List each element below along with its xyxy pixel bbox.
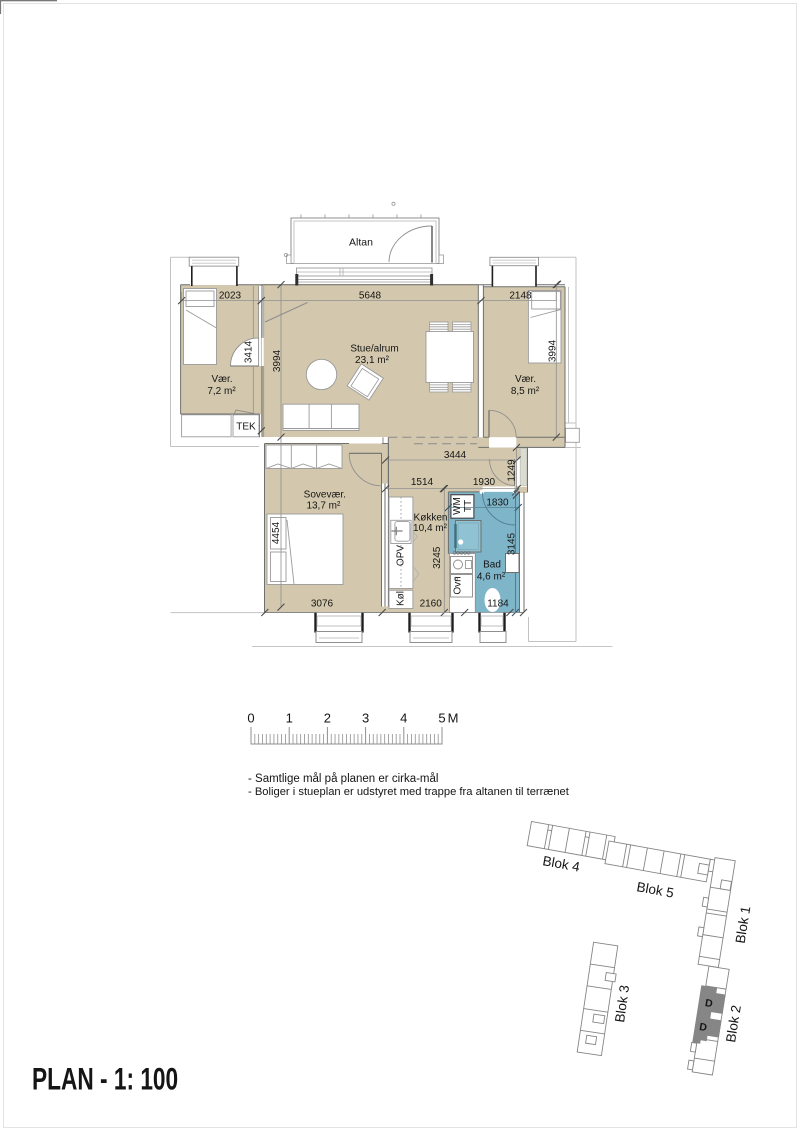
svg-text:7,2 m²: 7,2 m² bbox=[207, 386, 236, 397]
svg-text:M: M bbox=[448, 711, 459, 726]
svg-text:Køl: Køl bbox=[396, 591, 407, 606]
svg-text:1514: 1514 bbox=[411, 477, 434, 488]
svg-text:10,4 m²: 10,4 m² bbox=[413, 523, 448, 534]
svg-text:0: 0 bbox=[247, 711, 254, 726]
svg-text:1: 1 bbox=[286, 711, 293, 726]
svg-text:3: 3 bbox=[362, 711, 369, 726]
svg-text:2023: 2023 bbox=[219, 291, 242, 302]
svg-text:- Boliger i stueplan er udstyr: - Boliger i stueplan er udstyret med tra… bbox=[248, 786, 570, 798]
svg-text:1184: 1184 bbox=[487, 599, 509, 610]
svg-text:3076: 3076 bbox=[311, 599, 334, 610]
svg-text:Vær.: Vær. bbox=[515, 374, 536, 385]
svg-text:2148: 2148 bbox=[509, 291, 532, 302]
svg-text:5: 5 bbox=[438, 711, 445, 726]
svg-text:Bad: Bad bbox=[483, 560, 501, 571]
svg-text:- Samtlige mål på planen er ci: - Samtlige mål på planen er cirka-mål bbox=[248, 773, 438, 785]
svg-text:2: 2 bbox=[324, 711, 331, 726]
svg-text:Køkken: Køkken bbox=[414, 513, 448, 524]
svg-text:2160: 2160 bbox=[420, 599, 443, 610]
svg-text:1249: 1249 bbox=[507, 459, 518, 482]
svg-text:1830: 1830 bbox=[486, 498, 509, 509]
svg-text:5648: 5648 bbox=[359, 291, 382, 302]
svg-text:TEK: TEK bbox=[236, 422, 256, 433]
svg-text:13,7 m²: 13,7 m² bbox=[306, 500, 341, 511]
svg-text:3994: 3994 bbox=[547, 339, 558, 362]
svg-text:8,5 m²: 8,5 m² bbox=[511, 386, 540, 397]
svg-text:Ovn: Ovn bbox=[452, 576, 463, 594]
svg-text:3414: 3414 bbox=[243, 340, 254, 363]
svg-text:Vær.: Vær. bbox=[211, 374, 232, 385]
svg-text:Altan: Altan bbox=[349, 237, 373, 249]
svg-text:OPV: OPV bbox=[395, 545, 406, 566]
svg-text:4,6 m²: 4,6 m² bbox=[477, 572, 506, 583]
svg-text:3994: 3994 bbox=[272, 349, 283, 372]
svg-text:23,1 m²: 23,1 m² bbox=[355, 355, 390, 366]
svg-text:4: 4 bbox=[400, 711, 407, 726]
svg-text:WM: WM bbox=[452, 497, 463, 515]
svg-text:4454: 4454 bbox=[271, 521, 282, 544]
svg-text:TT: TT bbox=[463, 500, 474, 512]
svg-text:3145: 3145 bbox=[507, 532, 518, 555]
svg-text:3245: 3245 bbox=[432, 546, 443, 569]
svg-text:PLAN - 1: 100: PLAN - 1: 100 bbox=[32, 1061, 178, 1097]
svg-text:3444: 3444 bbox=[444, 450, 467, 461]
svg-text:Sovevær.: Sovevær. bbox=[304, 489, 346, 500]
svg-text:1930: 1930 bbox=[473, 477, 496, 488]
svg-text:Stue/alrum: Stue/alrum bbox=[350, 343, 398, 354]
